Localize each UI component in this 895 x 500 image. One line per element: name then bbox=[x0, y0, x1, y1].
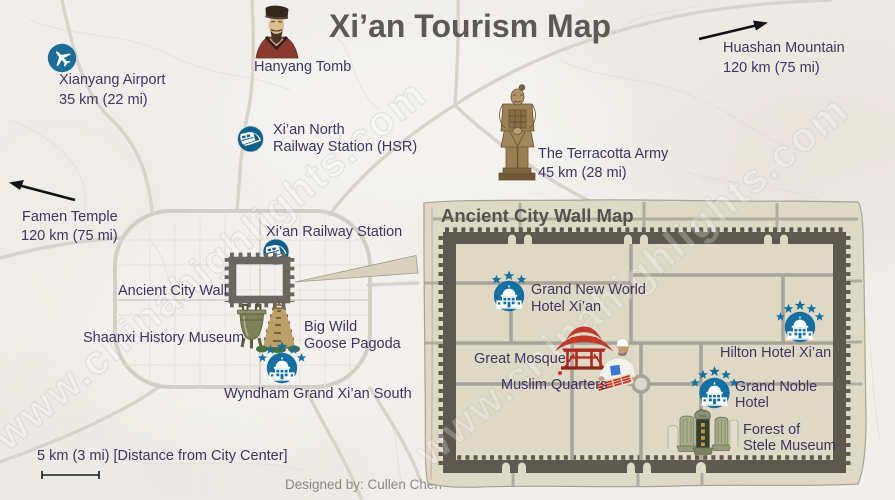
svg-text:Stele Museum: Stele Museum bbox=[743, 438, 836, 454]
svg-text:Ancient City Wall: Ancient City Wall bbox=[118, 283, 227, 299]
svg-text:Grand Noble: Grand Noble bbox=[735, 379, 817, 395]
svg-text:Hanyang Tomb: Hanyang Tomb bbox=[254, 59, 351, 75]
svg-text:5 km (3 mi) [Distance from Cit: 5 km (3 mi) [Distance from City Center] bbox=[37, 448, 288, 464]
svg-text:Ancient City Wall Map: Ancient City Wall Map bbox=[441, 205, 634, 226]
svg-text:Xi’an Railway Station: Xi’an Railway Station bbox=[266, 224, 402, 240]
svg-text:Hilton Hotel Xi’an: Hilton Hotel Xi’an bbox=[720, 345, 831, 361]
svg-text:Shaanxi History Museum: Shaanxi History Museum bbox=[83, 330, 244, 346]
svg-text:Huashan Mountain: Huashan Mountain bbox=[723, 40, 845, 56]
svg-text:Hotel Xi’an: Hotel Xi’an bbox=[531, 299, 601, 315]
svg-text:Big Wild: Big Wild bbox=[304, 319, 357, 335]
svg-text:Xi’an North: Xi’an North bbox=[273, 122, 345, 138]
svg-text:Railway Station (HSR): Railway Station (HSR) bbox=[273, 139, 417, 155]
svg-text:The Terracotta Army: The Terracotta Army bbox=[538, 146, 669, 162]
svg-text:35 km (22 mi): 35 km (22 mi) bbox=[59, 92, 148, 108]
svg-text:120 km (75 mi): 120 km (75 mi) bbox=[723, 60, 820, 76]
svg-text:Xi’an Tourism Map: Xi’an Tourism Map bbox=[329, 8, 611, 44]
svg-text:Hotel: Hotel bbox=[735, 395, 769, 411]
svg-text:Forest of: Forest of bbox=[743, 422, 801, 438]
svg-text:Great Mosque: Great Mosque bbox=[474, 351, 566, 367]
svg-text:120 km (75 mi): 120 km (75 mi) bbox=[21, 228, 118, 244]
svg-text:Xianyang Airport: Xianyang Airport bbox=[59, 72, 165, 88]
svg-text:Designed by: Cullen Chen: Designed by: Cullen Chen bbox=[285, 477, 442, 492]
svg-text:Wyndham Grand Xi’an South: Wyndham Grand Xi’an South bbox=[224, 386, 412, 402]
svg-text:Goose Pagoda: Goose Pagoda bbox=[304, 336, 402, 352]
svg-text:45 km (28 mi): 45 km (28 mi) bbox=[538, 165, 627, 181]
svg-text:Famen Temple: Famen Temple bbox=[22, 209, 118, 225]
svg-text:Muslim Quarters: Muslim Quarters bbox=[501, 377, 607, 393]
svg-text:Grand New World: Grand New World bbox=[531, 282, 646, 298]
